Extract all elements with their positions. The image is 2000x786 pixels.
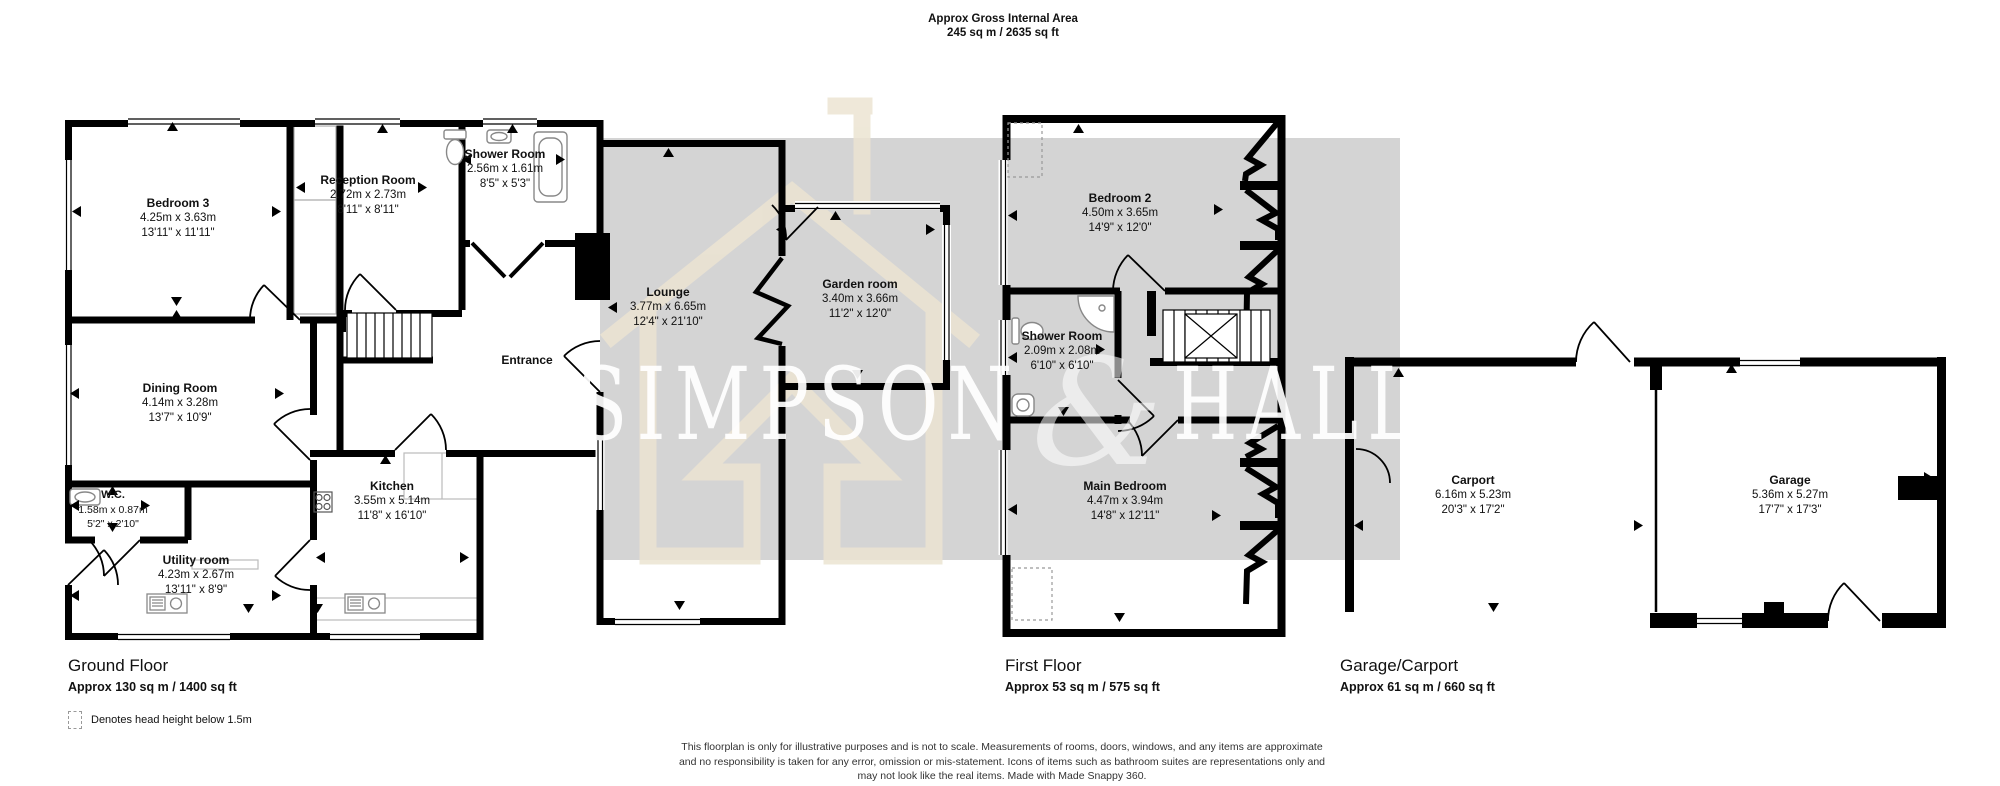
room-label-lounge: Lounge 3.77m x 6.65m 12'4" x 21'10" (630, 284, 706, 331)
room-label-bedroom-3: Bedroom 3 4.25m x 3.63m 13'11" x 11'11" (140, 195, 216, 242)
disclaimer-line-3: may not look like the real items. Made w… (679, 769, 1325, 784)
page-title: Approx Gross Internal Area 245 sq m / 26… (928, 12, 1078, 41)
first-floor-title: First Floor (1005, 656, 1082, 676)
kitchen-counter (192, 453, 480, 620)
stairs-icon (1163, 310, 1270, 362)
legend: Denotes head height below 1.5m (68, 711, 252, 729)
room-label-shower-gf: Shower Room 2.56m x 1.61m 8'5" x 5'3" (465, 146, 546, 193)
sink-icon (487, 130, 511, 143)
wall-pier (1898, 476, 1938, 500)
room-label-kitchen: Kitchen 3.55m x 5.14m 11'8" x 16'10" (354, 478, 430, 525)
room-label-utility: Utility room 4.23m x 2.67m 13'11" x 8'9" (158, 552, 234, 599)
wardrobe-icon (294, 126, 336, 314)
wall-pier (1764, 602, 1784, 618)
ground-floor-title: Ground Floor (68, 656, 168, 676)
wall-nub (338, 310, 346, 332)
room-label-wc: W.C. 1.58m x 0.87m 5'2" x 2'10" (78, 488, 147, 531)
ground-floor-area: Approx 130 sq m / 1400 sq ft (68, 680, 237, 694)
kitchen-sink-icon (345, 594, 385, 613)
floorplan-page: SIMPSON & HALL Approx Gross Internal Are… (0, 0, 2000, 786)
chimney-breast (575, 233, 610, 300)
first-floor-windows (999, 160, 1008, 555)
disclaimer-line-2: and no responsibility is taken for any e… (679, 755, 1325, 770)
room-label-bedroom-2: Bedroom 2 4.50m x 3.65m 14'9" x 12'0" (1082, 190, 1158, 237)
gross-area-title: Approx Gross Internal Area (928, 12, 1078, 26)
room-label-carport: Carport 6.16m x 5.23m 20'3" x 17'2" (1435, 472, 1511, 519)
garage-carport-area: Approx 61 sq m / 660 sq ft (1340, 680, 1495, 694)
gross-area-value: 245 sq m / 2635 sq ft (928, 26, 1078, 40)
basin-icon (1012, 394, 1034, 416)
room-label-main-bedroom: Main Bedroom 4.47m x 3.94m 14'8" x 12'11… (1083, 478, 1166, 525)
room-label-garden-room: Garden room 3.40m x 3.66m 11'2" x 12'0" (822, 276, 898, 323)
wall-nub (1650, 362, 1662, 390)
head-height-legend-swatch (68, 711, 82, 729)
wall-nub (1147, 291, 1156, 336)
first-floor-area: Approx 53 sq m / 575 sq ft (1005, 680, 1160, 694)
room-label-reception: Reception Room 2.72m x 2.73m 8'11" x 8'1… (320, 172, 415, 219)
room-label-dining: Dining Room 4.14m x 3.28m 13'7" x 10'9" (142, 380, 218, 427)
floorplan-drawing (0, 0, 2000, 786)
stairs-icon (347, 313, 432, 358)
room-label-garage: Garage 5.36m x 5.27m 17'7" x 17'3" (1752, 472, 1828, 519)
garage-carport-title: Garage/Carport (1340, 656, 1458, 676)
room-label-entrance: Entrance (501, 352, 552, 368)
disclaimer-line-1: This floorplan is only for illustrative … (679, 740, 1325, 755)
head-height-legend-text: Denotes head height below 1.5m (91, 714, 252, 726)
disclaimer: This floorplan is only for illustrative … (679, 740, 1325, 784)
room-label-shower-ff: Shower Room 2.09m x 2.08m 6'10" x 6'10" (1022, 328, 1103, 375)
